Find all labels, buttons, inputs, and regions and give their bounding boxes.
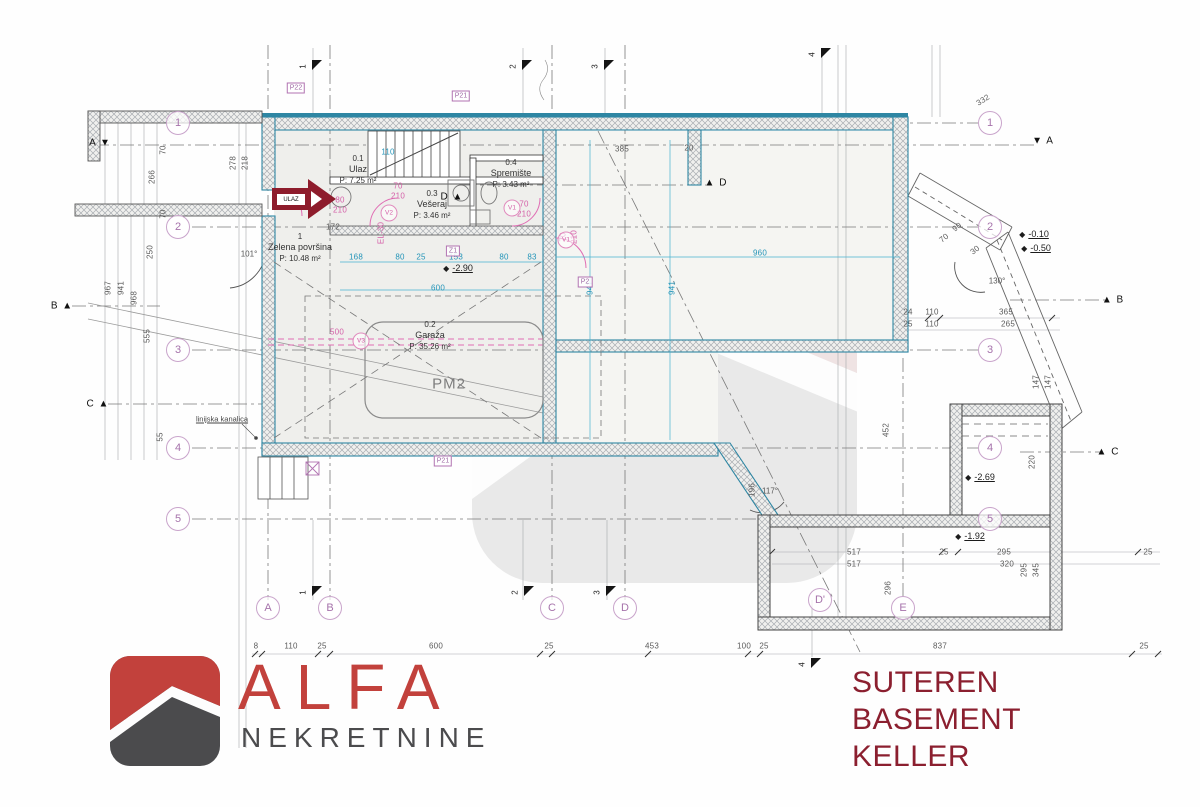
section-direction-marker: A ▼ [89, 138, 111, 149]
grid-bubble-number: 4 [978, 436, 1002, 460]
flag-triangle-icon [811, 658, 821, 668]
dimension-label: 80 [395, 253, 404, 262]
dimension-label: 55 [156, 432, 165, 441]
grid-bubble-number: 3 [978, 338, 1002, 362]
section-direction-marker: ▼ A [1032, 136, 1054, 147]
dimension-label: 295 [997, 548, 1011, 557]
elevation-marker: ◆-1.92 [955, 531, 985, 541]
grid-bubble-number: 5 [978, 507, 1002, 531]
dimension-label: 25 [1139, 642, 1148, 651]
room-label: 0.4SpremišteP: 3.43 m² [491, 158, 532, 190]
reference-tag: P21 [434, 456, 452, 467]
grid-bubble-letter: C [540, 596, 564, 620]
dimension-label: 25 [903, 320, 912, 329]
elevation-marker: ◆-2.69 [965, 472, 995, 482]
entrance-label: ULAZ [277, 194, 305, 205]
note-label: linijska kanalica [196, 415, 248, 424]
benchmark-icon: ◆ [955, 532, 961, 541]
dimension-label: 968 [130, 291, 139, 305]
plan-title-line-2: BASEMENT [852, 701, 1021, 738]
angle-label: 101° [241, 250, 258, 259]
dimension-label: 20 [684, 144, 693, 153]
elevation-marker: ◆-2.90 [443, 263, 473, 273]
room-label: 1Zelena površinaP: 10.48 m² [268, 232, 332, 264]
grid-bubble-number: 1 [166, 111, 190, 135]
dimension-label: 83 [527, 253, 536, 262]
dimension-label: 110 [925, 308, 938, 317]
benchmark-icon: ◆ [1019, 230, 1025, 239]
dimension-label: 80 [499, 253, 508, 262]
dimension-label: 147 [1044, 375, 1053, 389]
plan-title-line-3: KELLER [852, 738, 1021, 775]
dimension-label: 555 [143, 329, 152, 343]
room-label: 0.2GaražaP: 35.26 m² [409, 320, 450, 352]
flag-triangle-icon [522, 60, 532, 70]
section-direction-marker: B ▲ [51, 301, 73, 312]
dimension-label: 266 [148, 170, 157, 184]
dimension-label: 80 [335, 196, 344, 205]
dimension-label: 453 [645, 642, 659, 651]
dimension-label: 296 [884, 581, 893, 595]
elevation-marker: ◆-0.10 [1019, 229, 1049, 239]
dimension-label: 172 [326, 223, 340, 232]
flag-triangle-icon [524, 586, 534, 596]
dimension-label: 500 [330, 328, 344, 337]
dimension-label: 517 [847, 560, 861, 569]
flag-triangle-icon [312, 586, 322, 596]
grid-bubble-letter: B [318, 596, 342, 620]
logo-subtitle-text: NEKRETNINE [241, 722, 491, 754]
dimension-label: 320 [1000, 560, 1014, 569]
benchmark-icon: ◆ [443, 264, 449, 273]
dimension-label: 967 [104, 281, 113, 295]
dimension-label: 100 [737, 642, 751, 651]
dimension-label: 25 [1143, 548, 1152, 557]
reference-tag: Z1 [446, 246, 460, 257]
section-direction-marker: ▲ B [1102, 295, 1124, 306]
dimension-label: 70 [159, 145, 168, 154]
dimension-label: 265 [1001, 320, 1015, 329]
alfa-logo [110, 656, 220, 766]
section-direction-marker: ▲ C [1097, 447, 1120, 458]
dimension-label: 941 [668, 281, 677, 295]
dimension-label: 517 [847, 548, 861, 557]
grid-bubble-letter: A [256, 596, 280, 620]
grid-bubble-letter: E [891, 596, 915, 620]
dimension-label: EL-30 [377, 222, 386, 244]
parking-stall-label: PM2 [432, 376, 466, 393]
dimension-label: 110 [925, 320, 938, 329]
angle-label: 117° [762, 487, 778, 496]
dimension-label: 25 [416, 253, 425, 262]
dimension-label: 70 [393, 182, 402, 191]
flag-triangle-icon [606, 586, 616, 596]
dimension-label: 600 [431, 284, 445, 293]
plan-title: SUTEREN BASEMENT KELLER [852, 664, 1021, 775]
dimension-label: 196 [748, 483, 757, 497]
section-direction-marker: C ▲ [87, 399, 110, 410]
dimension-label: 278 [229, 156, 238, 170]
dimension-label: 960 [753, 249, 767, 258]
door-tag: V1 [558, 232, 575, 249]
door-tag: V3 [353, 333, 370, 350]
dimension-label: 941 [117, 281, 126, 295]
reference-tag: P21 [452, 91, 470, 102]
flag-triangle-icon [604, 60, 614, 70]
dimension-label: 452 [882, 423, 891, 437]
dimension-label: 345 [1032, 563, 1041, 577]
dimension-label: 25 [939, 548, 948, 557]
reference-tag: P22 [287, 83, 305, 94]
section-direction-marker: ▲ D [705, 178, 728, 189]
grid-bubble-number: 5 [166, 507, 190, 531]
dimension-label: 25 [544, 642, 553, 651]
benchmark-icon: ◆ [1021, 244, 1027, 253]
door-tag: V1 [504, 200, 521, 217]
reference-tag: P2 [578, 277, 593, 288]
dimension-label: 24 [903, 308, 912, 317]
dimension-label: 110 [381, 148, 394, 157]
grid-bubble-number: 1 [978, 111, 1002, 135]
dimension-label: 295 [1020, 563, 1029, 577]
dimension-label: 25 [759, 642, 768, 651]
exterior-stairs [258, 457, 308, 499]
dimension-label: 218 [241, 156, 250, 170]
benchmark-icon: ◆ [965, 473, 971, 482]
grid-bubble-number: 2 [166, 215, 190, 239]
room-label: 0.1UlazP: 7.25 m² [340, 154, 377, 186]
grid-bubble-letter: D [613, 596, 637, 620]
dimension-label: 220 [1028, 455, 1037, 469]
logo-brand-text: ALFA [238, 650, 455, 724]
dimension-label: 385 [615, 145, 629, 154]
grid-bubble-letter: D' [808, 588, 832, 612]
grid-bubble-number: 3 [166, 338, 190, 362]
angle-label: 130° [989, 277, 1006, 286]
dimension-label: 70 [519, 200, 528, 209]
door-tag: V2 [381, 205, 398, 222]
grid-bubble-number: 4 [166, 436, 190, 460]
floor-plan-board: ULAZ ALFA NEKRETNINE SUTEREN BASEMENT KE… [0, 0, 1200, 807]
room-label: 0.3VešerajP: 3.46 m² [414, 189, 451, 221]
dimension-label: 168 [349, 253, 363, 262]
dimension-label: 147 [1032, 375, 1041, 389]
grid-bubble-number: 2 [978, 215, 1002, 239]
elevation-marker: ◆-0.50 [1021, 243, 1051, 253]
dimension-label: 210 [391, 192, 405, 201]
dimension-label: 250 [146, 245, 155, 259]
dimension-label: 70 [159, 209, 168, 218]
flag-triangle-icon [312, 60, 322, 70]
dimension-label: 837 [933, 642, 947, 651]
flag-triangle-icon [821, 48, 831, 58]
dimension-label: 210 [333, 206, 347, 215]
dimension-label: 365 [999, 308, 1013, 317]
plan-title-line-1: SUTEREN [852, 664, 1021, 701]
